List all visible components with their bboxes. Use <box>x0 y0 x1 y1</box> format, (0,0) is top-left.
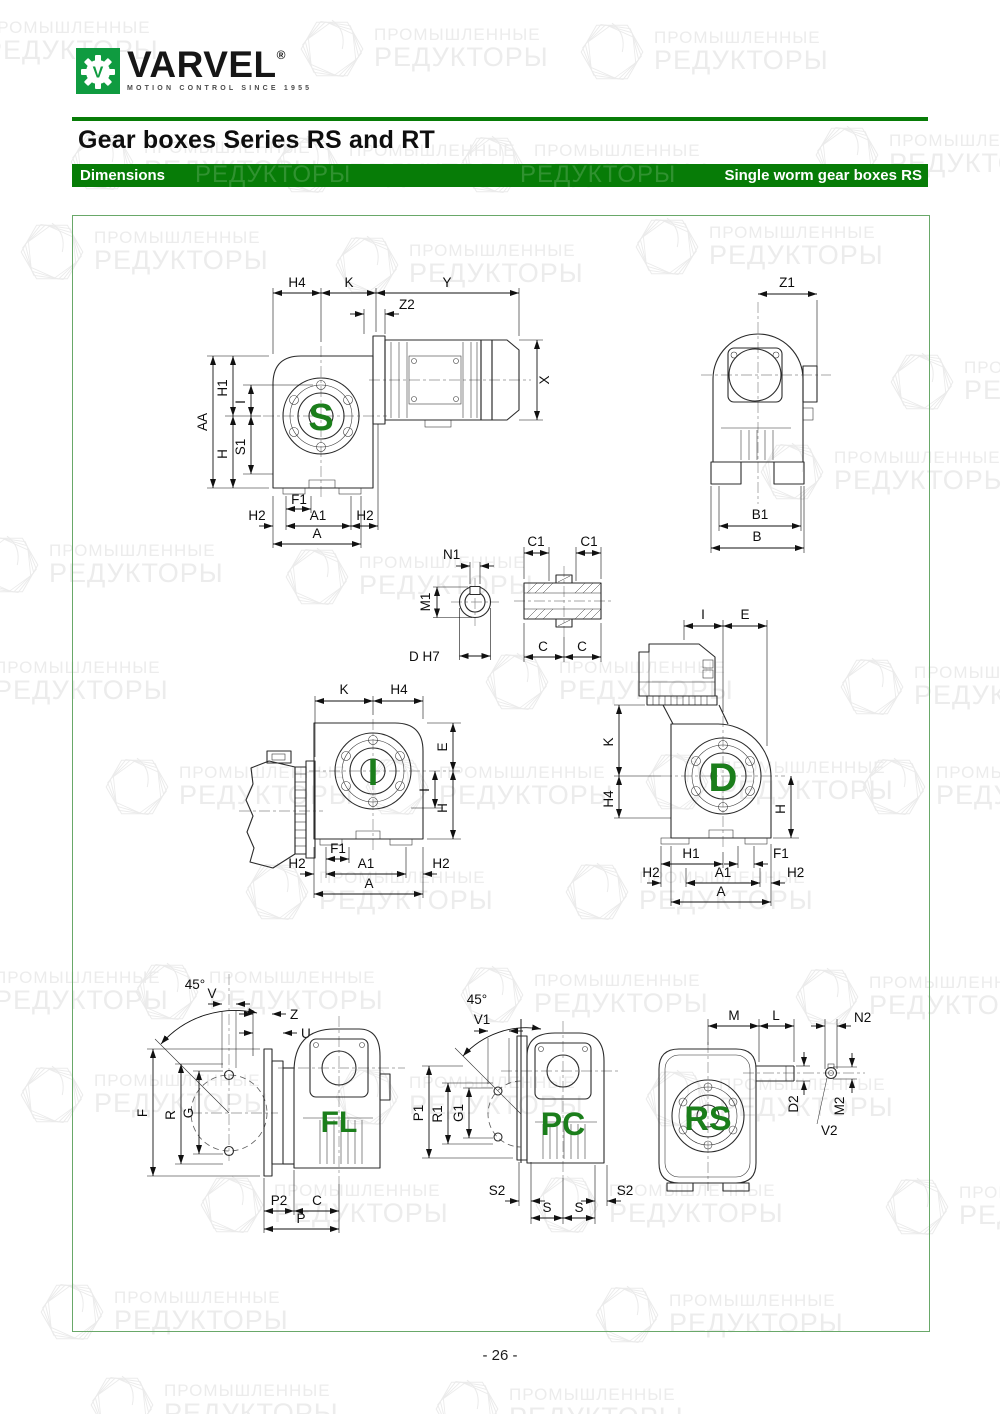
figure-hollow-shaft-detail: C1 C1 C C <box>514 534 611 662</box>
bore-dim-m1: M1 <box>418 593 433 612</box>
bore-dim-d: D H7 <box>409 649 440 664</box>
figure-pc: 45° V1 PC <box>411 992 633 1224</box>
watermark-hexagon-icon <box>0 528 44 602</box>
figure-rs: RS M L N2 <box>659 1008 871 1191</box>
watermark-line2: РЕДУКТОРЫ <box>509 1403 684 1414</box>
fl-dim-r: R <box>163 1110 178 1120</box>
d-dim-k: K <box>601 737 616 746</box>
figure-s: S H4 K Y <box>195 275 552 548</box>
pc-dim-r1: R1 <box>430 1105 445 1122</box>
i-dim-a1: A1 <box>358 856 375 871</box>
watermark-hexagon-icon <box>575 15 649 89</box>
fl-dim-c: C <box>312 1193 322 1208</box>
i-dim-f1: F1 <box>330 841 346 856</box>
d-dim-e: E <box>740 607 749 622</box>
pc-dim-s-left: S <box>542 1200 551 1215</box>
s-dim-aa: AA <box>195 413 210 431</box>
d-dim-a: A <box>716 884 725 899</box>
fl-dim-v: V <box>207 986 216 1001</box>
brand-name: VARVEL® <box>127 48 312 81</box>
watermark-line2: РЕДУКТОРЫ <box>654 46 829 74</box>
i-dim-h2-right: H2 <box>432 856 449 871</box>
rs-dim-v2: V2 <box>821 1123 838 1138</box>
watermark-ghost: РЕДУКТОРЫ <box>195 164 351 187</box>
figure-rear-view: Z1 B1 B <box>701 275 831 553</box>
drawings-frame: S H4 K Y <box>72 215 930 1332</box>
figure-letter-rs: RS <box>684 1100 731 1138</box>
fl-dim-f: F <box>135 1109 150 1117</box>
pc-dim-s2-right: S2 <box>617 1183 634 1198</box>
d-dim-h2-right: H2 <box>787 865 804 880</box>
varvel-logo: V VARVEL® MOTION CONTROL SINCE 1955 <box>76 48 312 94</box>
s-dim-h1: H1 <box>215 379 230 396</box>
i-dim-h2-left: H2 <box>288 856 305 871</box>
hollow-dim-c-right: C <box>577 639 587 654</box>
fl-dim-g: G <box>181 1108 196 1119</box>
watermark: ПРОМЫШЛЕННЫЕ РЕДУКТОРЫ <box>430 1372 684 1414</box>
pc-dim-g1: G1 <box>451 1104 466 1122</box>
s-dim-y: Y <box>442 275 451 290</box>
brand-text: VARVEL <box>127 44 277 85</box>
s-dim-i: I <box>233 400 248 404</box>
section-bar-right-label: Single worm gear boxes RS <box>724 167 922 184</box>
s-dim-a1: A1 <box>310 508 327 523</box>
varvel-gear-icon: V <box>76 48 120 94</box>
watermark-line2: РЕДУКТОРЫ <box>936 781 1000 809</box>
rs-dim-n2: N2 <box>854 1010 871 1025</box>
watermark-hexagon-icon <box>430 1372 504 1414</box>
d-dim-h1: H1 <box>682 846 699 861</box>
rear-dim-b1: B1 <box>752 507 769 522</box>
technical-drawings: S H4 K Y <box>73 216 929 1331</box>
d-dim-f1: F1 <box>773 846 789 861</box>
rear-dim-z1: Z1 <box>779 275 795 290</box>
rs-dim-m: M <box>728 1008 739 1023</box>
figure-d: D I E K H4 H <box>601 607 804 906</box>
fl-dim-p: P <box>296 1211 305 1226</box>
figure-letter-d: D <box>709 756 738 800</box>
watermark-line2: РЕДУКТОРЫ <box>164 1399 339 1414</box>
watermark-ghost: РЕДУКТОРЫ <box>520 164 676 187</box>
watermark-hexagon-icon <box>85 1368 159 1414</box>
d-dim-h2-left: H2 <box>642 865 659 880</box>
figure-letter-fl: FL <box>321 1106 358 1139</box>
s-dim-x: X <box>537 375 552 384</box>
s-dim-z2: Z2 <box>399 297 415 312</box>
registered-mark: ® <box>277 48 286 62</box>
watermark-line2: РЕДУКТОРЫ <box>964 376 1000 404</box>
d-dim-h: H <box>773 804 788 814</box>
i-dim-h: H <box>435 803 450 813</box>
figure-letter-pc: PC <box>541 1106 585 1142</box>
fl-dim-angle: 45° <box>185 977 205 992</box>
section-bar: РЕДУКТОРЫ РЕДУКТОРЫ Dimensions Single wo… <box>72 164 928 187</box>
rs-dim-m2: M2 <box>832 1097 847 1116</box>
watermark: ПРОМЫШЛЕННЫЕ РЕДУКТОРЫ <box>575 15 829 89</box>
hollow-dim-c-left: C <box>538 639 548 654</box>
s-dim-h4: H4 <box>288 275 306 290</box>
s-dim-h2-left: H2 <box>248 508 265 523</box>
fl-dim-z: Z <box>290 1007 298 1022</box>
i-dim-i: I <box>417 788 432 792</box>
page: ПРОМЫШЛЕННЫЕ РЕДУКТОРЫ ПРОМЫШЛЕННЫЕ РЕДУ… <box>0 0 1000 1414</box>
svg-text:V: V <box>93 65 104 82</box>
figure-letter-i: I <box>368 752 379 794</box>
figure-letter-s: S <box>308 397 333 439</box>
s-dim-k: K <box>344 275 353 290</box>
i-dim-k: K <box>339 682 348 697</box>
s-dim-s1: S1 <box>233 439 248 456</box>
s-dim-h2-right: H2 <box>356 508 373 523</box>
rs-dim-l: L <box>772 1008 780 1023</box>
pc-dim-angle: 45° <box>467 992 487 1007</box>
figure-i: I K H4 <box>239 682 463 898</box>
i-dim-h4: H4 <box>390 682 408 697</box>
rear-dim-b: B <box>752 529 761 544</box>
brand-tagline: MOTION CONTROL SINCE 1955 <box>127 85 312 92</box>
watermark-line2: РЕДУКТОРЫ <box>959 1201 1000 1229</box>
s-dim-f1: F1 <box>291 492 307 507</box>
s-dim-h: H <box>215 449 230 459</box>
hollow-dim-c1-left: C1 <box>527 534 544 549</box>
fl-dim-p2: P2 <box>271 1193 288 1208</box>
figure-fl: 45° V Z U <box>135 974 405 1233</box>
watermark: ПРОМЫШЛЕННЫЕ РЕДУКТОРЫ <box>295 12 549 86</box>
green-rule <box>72 117 928 121</box>
figure-bore-detail: N1 M1 D H7 <box>409 547 499 664</box>
s-dim-a: A <box>312 526 321 541</box>
pc-dim-s2-left: S2 <box>489 1183 506 1198</box>
watermark-line2: РЕДУКТОРЫ <box>374 43 549 71</box>
rs-dim-d2: D2 <box>786 1095 801 1112</box>
i-dim-e: E <box>435 742 450 751</box>
pc-dim-p1: P1 <box>411 1105 426 1122</box>
section-bar-left-label: Dimensions <box>80 167 165 184</box>
bore-dim-n1: N1 <box>443 547 460 562</box>
page-title: Gear boxes Series RS and RT <box>78 126 435 155</box>
d-dim-a1: A1 <box>715 865 732 880</box>
pc-dim-s-right: S <box>574 1200 583 1215</box>
page-number: - 26 - <box>0 1347 1000 1364</box>
d-dim-i: I <box>701 607 705 622</box>
pc-dim-v1: V1 <box>474 1012 491 1027</box>
watermark: ПРОМЫШЛЕННЫЕ РЕДУКТОРЫ <box>85 1368 339 1414</box>
hollow-dim-c1-right: C1 <box>580 534 597 549</box>
d-dim-h4: H4 <box>601 790 616 808</box>
i-dim-a: A <box>364 876 373 891</box>
